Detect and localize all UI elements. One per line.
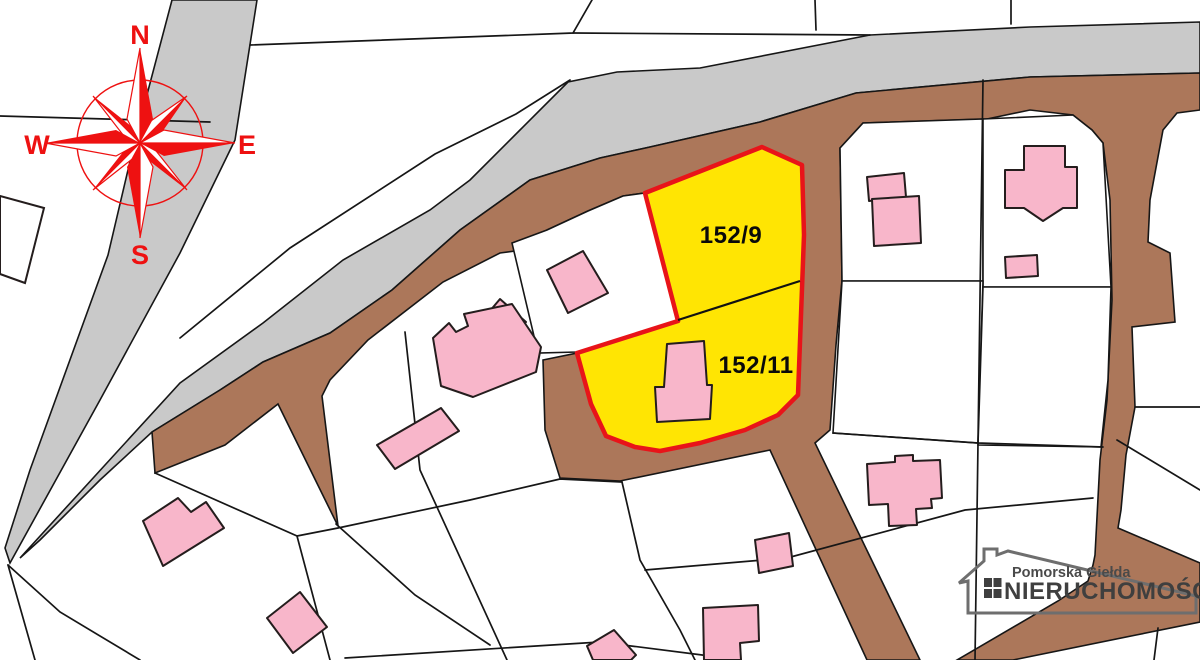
logo-text-main: NIERUCHOMOŚCI [1004,577,1200,605]
parcel-label-152-11: 152/11 [718,352,793,379]
building [872,196,921,246]
building [755,533,793,573]
building [1005,255,1038,278]
parcel-label-152-9: 152/9 [700,222,763,249]
building-rotated-rect [377,408,459,469]
building-large-center [433,304,541,397]
white-parcel-3 [833,281,983,443]
compass-west-label: W [24,130,50,160]
compass-south-label: S [131,240,149,270]
building-l-shape [143,498,224,566]
cadastral-map: N E S W 152/9 152/11 Pomorska Giełda NIE… [0,0,1200,660]
white-parcel-4 [978,287,1111,447]
compass-north-label: N [130,20,150,50]
gray-road-left [5,0,257,563]
compass-east-label: E [238,130,256,160]
building-l-bottom [703,605,759,660]
building-t-shape [867,455,942,526]
building-outline-topleft [0,196,44,283]
map-canvas: N E S W 152/9 152/11 Pomorska Giełda NIE… [0,0,1200,660]
building-diamond [267,592,327,653]
window-grid-icon [984,578,1002,598]
